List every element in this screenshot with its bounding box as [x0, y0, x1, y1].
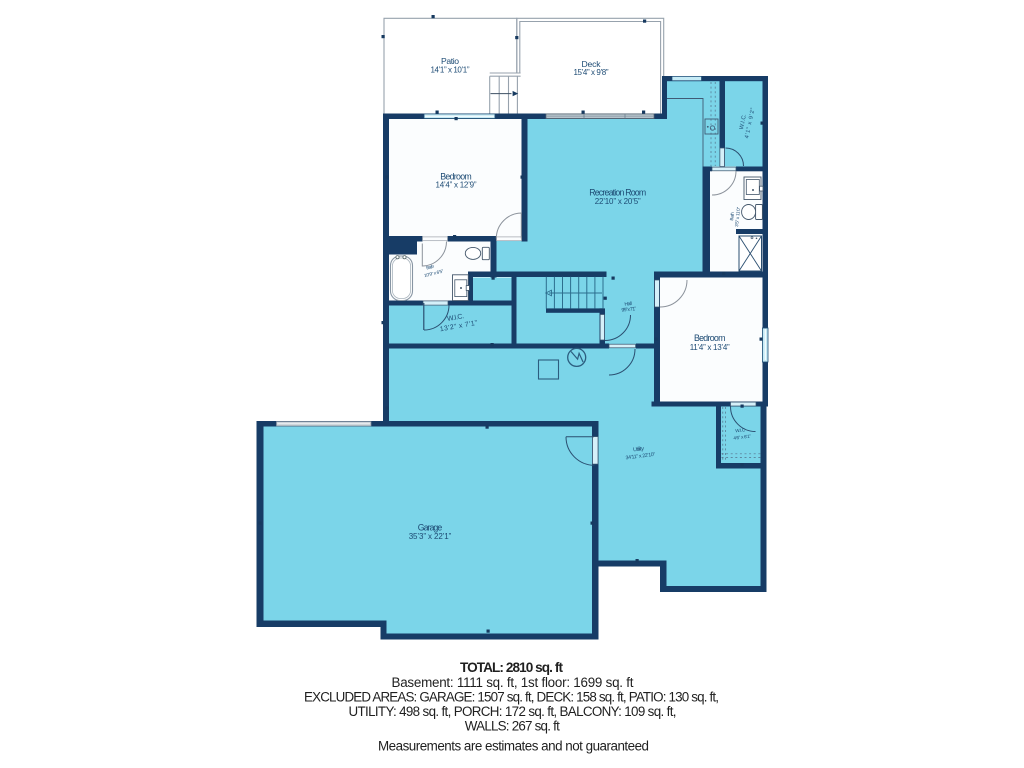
svg-text:15’4” x 9’8”: 15’4” x 9’8” [574, 68, 609, 77]
svg-text:35’3” x 22’1”: 35’3” x 22’1” [409, 532, 452, 541]
svg-text:Bedroom: Bedroom [694, 333, 726, 343]
svg-text:WALLS: 267 sq. ft: WALLS: 267 sq. ft [465, 718, 560, 733]
svg-text:14’4” x 12’9”: 14’4” x 12’9” [436, 180, 477, 189]
svg-text:EXCLUDED AREAS: GARAGE: 1507 s: EXCLUDED AREAS: GARAGE: 1507 sq. ft, DEC… [304, 690, 719, 705]
svg-text:14’1” x 10’1”: 14’1” x 10’1” [431, 65, 470, 74]
svg-text:TOTAL: 2810 sq. ft: TOTAL: 2810 sq. ft [460, 660, 563, 675]
svg-text:Recreation Room: Recreation Room [589, 187, 646, 197]
svg-text:Measurements are estimates and: Measurements are estimates and not guara… [378, 739, 649, 754]
svg-text:11’4” x 13’4”: 11’4” x 13’4” [690, 343, 730, 352]
svg-text:UTILITY: 498 sq. ft, PORCH: 17: UTILITY: 498 sq. ft, PORCH: 172 sq. ft, … [349, 704, 677, 719]
svg-text:Basement: 1111 sq. ft, 1st flo: Basement: 1111 sq. ft, 1st floor: 1699 s… [392, 675, 634, 690]
svg-text:Garage: Garage [418, 522, 443, 532]
svg-text:22’10” x 20’5”: 22’10” x 20’5” [595, 197, 641, 206]
